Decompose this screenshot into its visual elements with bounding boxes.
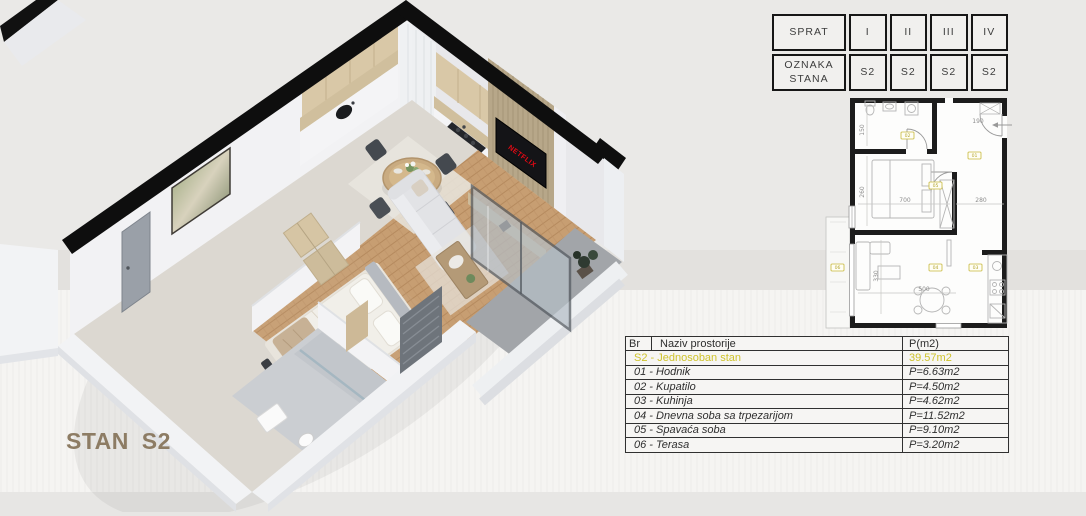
floor-plan-2d: 150 190 260 700 280 330 500 02 01 05 [820,92,1012,334]
summary-name: S2 - Jednosoban stan [626,352,902,364]
floor-cell: I [849,14,887,51]
room-label-hallway: 01 [968,152,981,159]
room-name: 01 - Hodnik [626,366,902,378]
svg-text:05: 05 [933,183,939,189]
dim-living-width: 500 [918,286,930,293]
floor-cell: III [930,14,968,51]
dim-living-depth: 330 [873,270,880,282]
left-outer-block [0,244,58,364]
room-label-kitchen: 03 [969,264,982,271]
svg-text:02: 02 [905,133,911,139]
dim-hall-width: 190 [972,118,984,125]
table-row: 02 - Kupatilo P=4.50m2 [626,379,1008,394]
table-row: 05 - Spavaća soba P=9.10m2 [626,423,1008,438]
floor-cell: II [890,14,928,51]
room-area: P=11.52m2 [902,409,1008,423]
unit-cell: S2 [849,54,887,91]
unit-cell: S2 [971,54,1009,91]
room-area: P=6.63m2 [902,366,1008,380]
dim-bath-width: 150 [859,124,866,136]
svg-text:04: 04 [933,265,939,271]
summary-area: 39.57m2 [902,351,1008,365]
table-row: 03 - Kuhinja P=4.62m2 [626,394,1008,409]
room-name: 05 - Spavaća soba [626,424,902,436]
plan-interior [850,98,1007,328]
unit-cell: S2 [890,54,928,91]
svg-text:03: 03 [973,265,979,271]
room-area: P=9.10m2 [902,424,1008,438]
floors-header-cell: SPRAT [772,14,846,51]
plan-terrace [826,217,850,328]
unit-label-header-cell: OZNAKA STANA [772,54,846,91]
svg-text:06: 06 [835,265,841,271]
room-area: P=3.20m2 [902,438,1008,452]
apartment-title: STAN S2 [66,428,171,455]
floor-cell: IV [971,14,1009,51]
room-label-bedroom: 05 [929,182,942,189]
brochure-page: NETFLIX [0,0,1086,516]
header-name: Naziv prostorije [652,338,902,350]
room-area: P=4.62m2 [902,395,1008,409]
door-handle [126,266,129,269]
rooms-table: Br Naziv prostorije P(m2) S2 - Jednosoba… [625,336,1009,453]
neighbor-wall-fragment [0,0,86,66]
room-name: 04 - Dnevna soba sa trpezarijom [626,410,902,422]
floors-table: SPRAT I II III IV OZNAKA STANA S2 S2 S2 … [772,14,1008,91]
svg-text:01: 01 [972,153,978,159]
kitchen-faucet [351,101,354,104]
table-row: 01 - Hodnik P=6.63m2 [626,365,1008,380]
room-name: 03 - Kuhinja [626,395,902,407]
table-row-summary: S2 - Jednosoban stan 39.57m2 [626,350,1008,365]
room-name: 06 - Terasa [626,439,902,451]
right-outer-wall [604,158,624,262]
room-label-bathroom: 02 [901,132,914,139]
rooms-table-header: Br Naziv prostorije P(m2) [626,337,1008,350]
dim-bedroom-width: 700 [899,197,911,204]
room-label-terrace: 06 [831,264,844,271]
room-label-living-room: 04 [929,264,942,271]
unit-cell: S2 [930,54,968,91]
dim-bedroom-depth: 260 [859,186,866,198]
header-area: P(m2) [902,337,1008,350]
header-br: Br [626,337,652,350]
room-area: P=4.50m2 [902,380,1008,394]
table-row: 04 - Dnevna soba sa trpezarijom P=11.52m… [626,408,1008,423]
room-name: 02 - Kupatilo [626,381,902,393]
dim-hall-depth: 280 [975,197,987,204]
table-row: 06 - Terasa P=3.20m2 [626,437,1008,452]
